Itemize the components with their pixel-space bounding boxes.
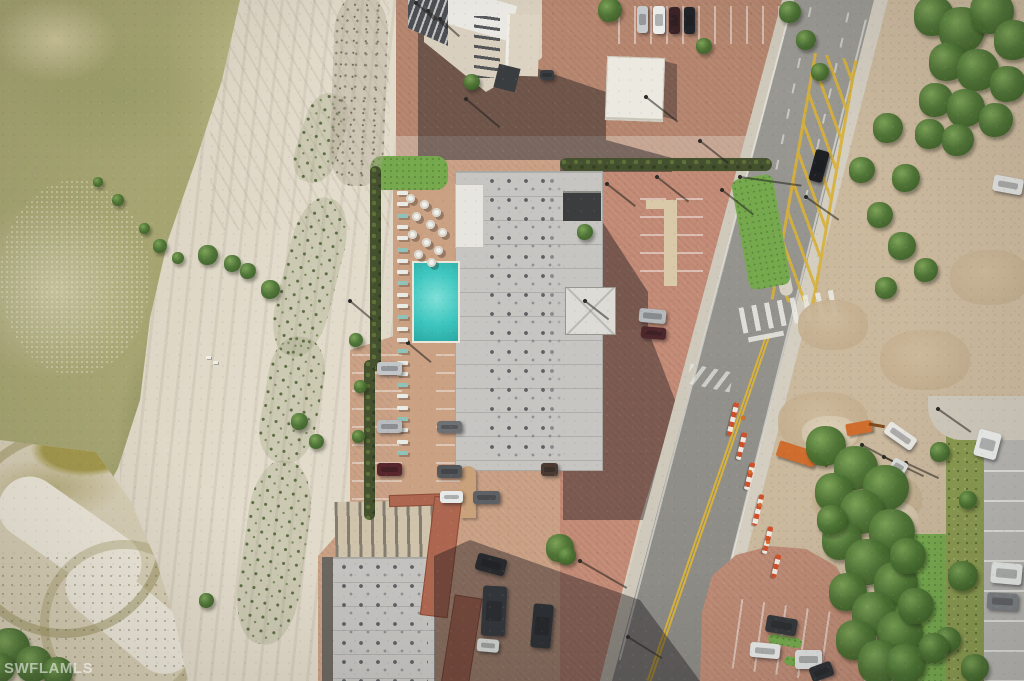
tree-canopy xyxy=(779,1,801,23)
traffic-cone xyxy=(766,540,770,544)
car xyxy=(481,585,508,636)
pool-umbrella xyxy=(422,238,431,247)
pool-umbrella xyxy=(408,230,417,239)
tree-canopy xyxy=(873,113,903,143)
car xyxy=(808,149,830,184)
car xyxy=(638,308,666,324)
car xyxy=(973,428,1002,460)
car xyxy=(992,175,1024,196)
lounge-chair xyxy=(397,327,408,331)
car xyxy=(440,491,463,503)
pole-shadow xyxy=(627,636,662,659)
lounge-chair xyxy=(397,236,408,240)
lounge-chair xyxy=(397,394,408,398)
pole-shadow xyxy=(439,18,460,37)
watermark: SWFLAMLS xyxy=(4,660,93,677)
car xyxy=(473,491,500,504)
traffic-cone xyxy=(748,470,752,474)
pool-umbrella xyxy=(406,194,415,203)
pole-shadow xyxy=(584,300,609,320)
tree-canopy xyxy=(240,263,256,279)
tree-canopy xyxy=(598,0,622,22)
aerial-photo: SWFLAMLS xyxy=(0,0,1024,681)
tree-canopy xyxy=(224,255,241,272)
car xyxy=(765,614,798,636)
car xyxy=(987,592,1019,611)
car xyxy=(476,638,499,653)
lounge-chair xyxy=(397,349,408,353)
car xyxy=(990,562,1023,586)
tree-canopy xyxy=(948,561,978,591)
tree-canopy xyxy=(93,177,103,187)
pole-shadow xyxy=(645,96,678,122)
tree-canopy xyxy=(990,66,1024,102)
tree-canopy xyxy=(153,239,167,253)
tree-canopy xyxy=(890,538,926,574)
pole-shadow xyxy=(606,183,636,207)
lounge-chair xyxy=(397,451,408,455)
tree-canopy xyxy=(898,588,934,624)
car xyxy=(474,552,507,576)
traffic-barrier xyxy=(752,494,765,526)
hedge-row xyxy=(560,158,772,171)
tree-canopy xyxy=(172,252,184,264)
tree-canopy xyxy=(112,194,124,206)
pool-umbrella xyxy=(420,200,429,209)
tree-canopy xyxy=(930,442,950,462)
tree-canopy xyxy=(979,103,1013,137)
lounge-chair xyxy=(397,248,408,252)
tree-canopy xyxy=(994,20,1024,60)
object-layer xyxy=(0,0,1024,681)
hedge-row xyxy=(370,166,381,371)
tree-canopy xyxy=(291,413,308,430)
traffic-barrier xyxy=(744,462,756,490)
traffic-barrier xyxy=(771,554,782,578)
tree-canopy xyxy=(961,654,989,681)
dune-vegetation xyxy=(230,457,317,649)
tree-canopy xyxy=(309,434,324,449)
lounge-chair xyxy=(397,315,408,319)
traffic-cone xyxy=(758,503,762,507)
lounge-chair xyxy=(397,440,408,444)
pool-umbrella xyxy=(412,212,421,221)
tree-canopy xyxy=(354,380,367,393)
lounge-chair xyxy=(397,293,408,297)
pole-shadow xyxy=(407,342,431,363)
car xyxy=(669,7,680,34)
pole-shadow xyxy=(721,189,754,215)
pool-umbrella xyxy=(434,246,443,255)
tree-canopy xyxy=(558,547,576,565)
car xyxy=(641,326,667,340)
car xyxy=(883,421,918,451)
tree-canopy xyxy=(796,30,816,50)
car xyxy=(541,463,558,476)
lounge-chair xyxy=(397,214,408,218)
lounge-chair xyxy=(397,270,408,274)
tree-canopy xyxy=(867,202,893,228)
pole-shadow xyxy=(465,98,500,128)
car xyxy=(653,6,665,34)
tree-canopy xyxy=(892,164,920,192)
tree-canopy xyxy=(577,224,593,240)
lounge-chair xyxy=(397,259,408,263)
tree-canopy xyxy=(139,223,150,234)
pole-shadow xyxy=(656,176,689,202)
pool-umbrella xyxy=(414,250,423,259)
pool-umbrella xyxy=(432,208,441,217)
lounge-chair xyxy=(397,338,408,342)
beach-debris-strip xyxy=(329,0,390,187)
pool-umbrella xyxy=(427,258,436,267)
car xyxy=(437,465,462,478)
pool-umbrella xyxy=(426,220,435,229)
tree-canopy xyxy=(199,593,214,608)
car xyxy=(684,7,695,34)
lounge-chair xyxy=(397,383,408,387)
pole-shadow xyxy=(740,176,802,187)
car xyxy=(377,362,402,375)
tree-canopy xyxy=(914,258,938,282)
lounge-chair xyxy=(397,225,408,229)
tree-canopy xyxy=(919,633,949,663)
car xyxy=(377,420,402,433)
pole-shadow xyxy=(937,408,971,433)
lounge-chair xyxy=(397,304,408,308)
traffic-barrier xyxy=(726,402,739,436)
tree-canopy xyxy=(464,74,480,90)
pole-shadow xyxy=(580,560,628,589)
car xyxy=(530,603,554,649)
beach-chair xyxy=(206,356,211,359)
tree-canopy xyxy=(349,333,363,347)
car xyxy=(377,463,402,476)
car xyxy=(437,421,462,433)
car xyxy=(540,70,554,80)
excavator xyxy=(845,420,873,436)
tree-canopy xyxy=(875,277,897,299)
beach-chair xyxy=(213,361,218,364)
lounge-chair xyxy=(397,281,408,285)
pool-umbrella xyxy=(438,228,447,237)
tree-canopy xyxy=(352,430,365,443)
tree-canopy xyxy=(849,157,875,183)
tree-canopy xyxy=(811,63,829,81)
tree-canopy xyxy=(942,124,974,156)
lounge-chair xyxy=(397,202,408,206)
tree-canopy xyxy=(959,491,977,509)
traffic-barrier xyxy=(736,432,748,460)
tree-canopy xyxy=(915,119,945,149)
pole-shadow xyxy=(805,196,839,221)
tree-canopy xyxy=(888,232,916,260)
tree-canopy xyxy=(198,245,218,265)
tree-canopy xyxy=(696,38,712,54)
lounge-chair xyxy=(397,406,408,410)
tree-canopy xyxy=(261,280,280,299)
car xyxy=(749,642,780,660)
traffic-cone xyxy=(741,416,745,420)
car xyxy=(637,6,648,33)
dune-vegetation xyxy=(264,192,356,362)
